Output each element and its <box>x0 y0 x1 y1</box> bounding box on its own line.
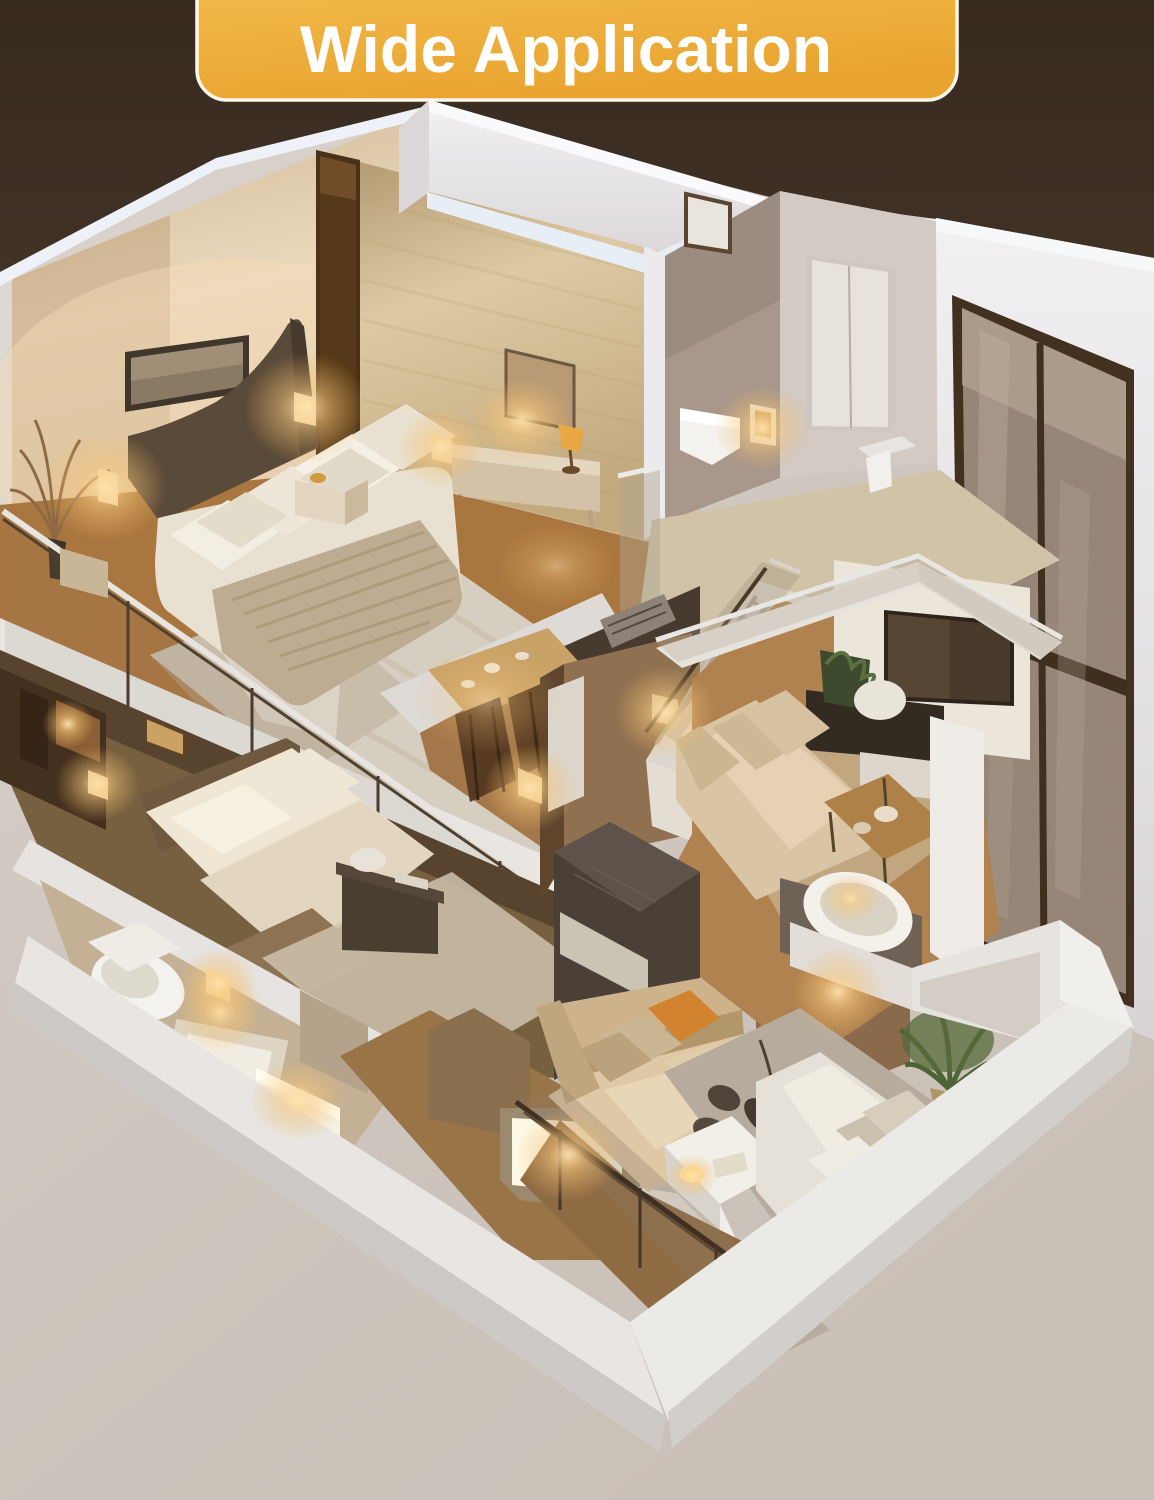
svg-text:Wide Application: Wide Application <box>300 12 832 86</box>
